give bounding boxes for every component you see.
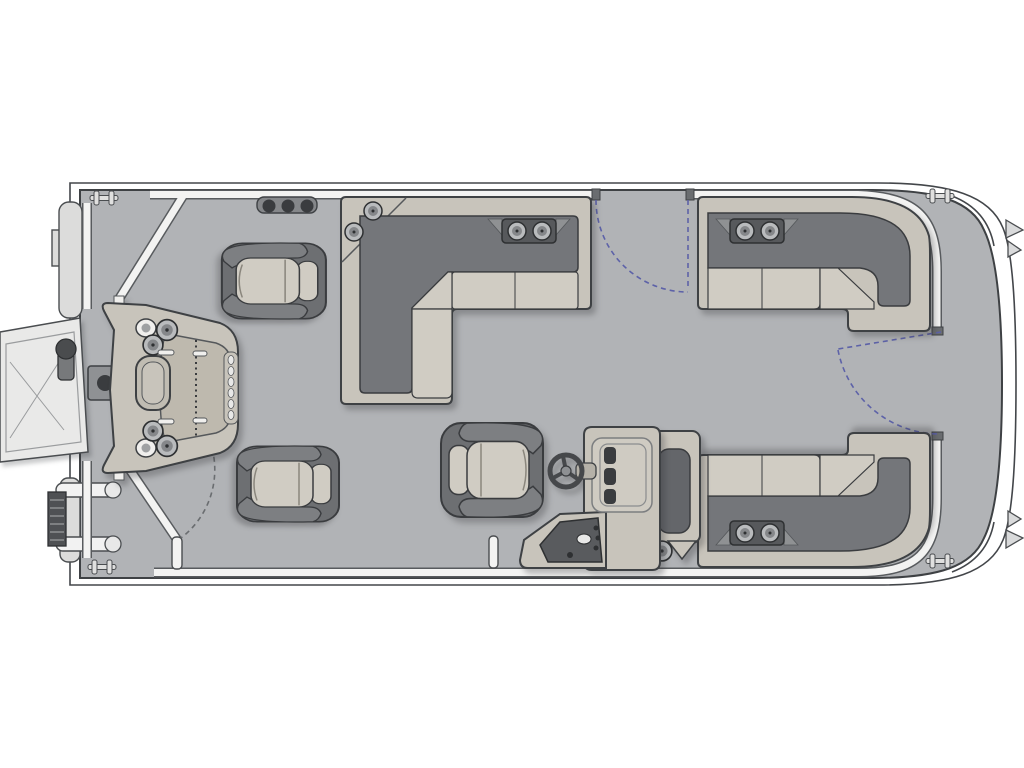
- fishing-chair-starboard: [237, 446, 339, 522]
- bow-trim-fins: [1006, 220, 1023, 548]
- pontoon-end-cap: [52, 202, 82, 318]
- ignition-slot: [577, 534, 591, 544]
- rail-knobs: [257, 197, 317, 213]
- gauge-cluster: [604, 447, 616, 504]
- fishing-station: [103, 296, 238, 480]
- station-grab-handle: [136, 356, 170, 410]
- boarding-ramp: [0, 318, 88, 462]
- helm-fence-post: [489, 536, 498, 568]
- pontoon-floorplan-diagram: [0, 0, 1024, 768]
- captain-chair: [441, 423, 543, 518]
- ramp-post: [56, 339, 76, 380]
- tool-slot-strip: [224, 352, 238, 424]
- stern-gate-post: [172, 537, 182, 569]
- fishing-chair-port: [222, 243, 326, 319]
